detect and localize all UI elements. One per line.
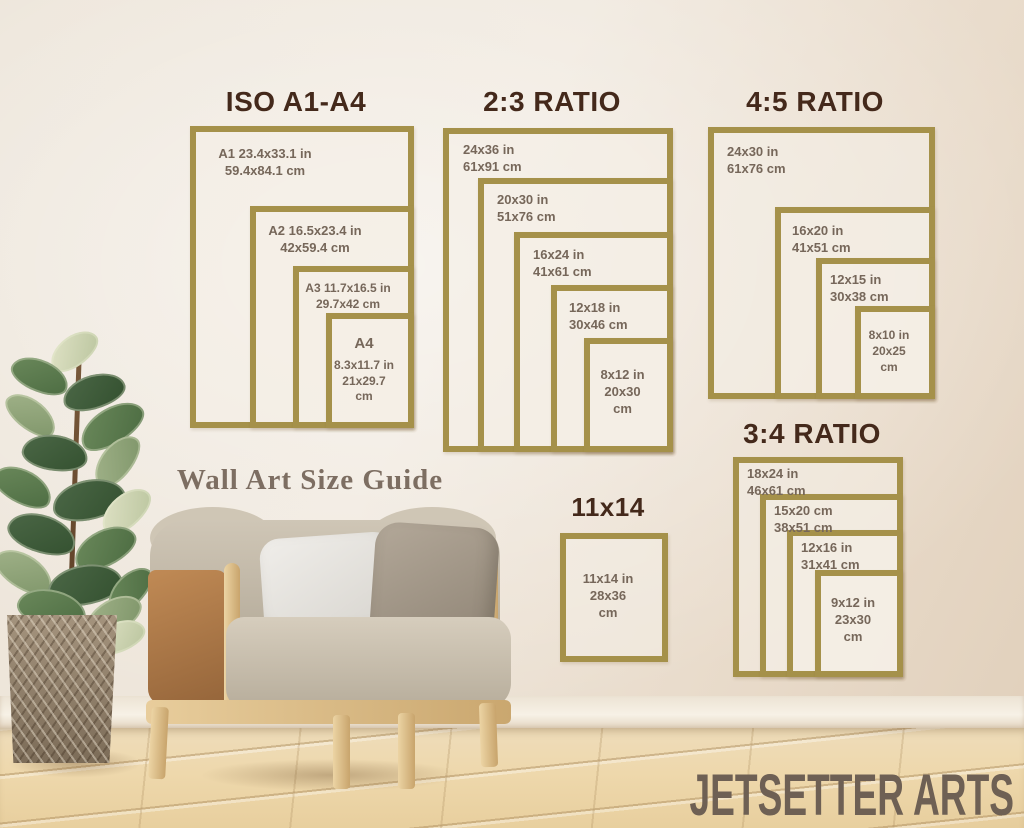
size-label-a2: A2 16.5x23.4 in 42x59.4 cm [252,222,378,256]
size-label-8x12: 8x12 in 20x30 cm [588,366,657,417]
size-label-12x15: 12x15 in 30x38 cm [830,271,889,305]
group-title-2-3: 2:3 RATIO [442,86,662,118]
chair-leg [398,713,415,789]
size-label-8x10: 8x10 in 20x25 cm [858,328,920,375]
plant-leaf [19,430,90,477]
size-label-9x12: 9x12 in 23x30 cm [818,594,888,645]
size-label-24x36: 24x36 in 61x91 cm [463,141,522,175]
group-title-11x14: 11x14 [498,492,718,523]
chair-frame-rail [146,700,511,724]
size-label-11x14: 11x14 in 28x36 cm [564,570,652,621]
guide-heading: Wall Art Size Guide [150,464,470,497]
size-label-18x24: 18x24 in 46x61 cm [747,465,806,499]
group-title-3-4: 3:4 RATIO [702,418,922,450]
plant-pot [0,615,126,763]
size-label-a4: A4 8.3x11.7 in 21x29.7 cm [330,334,398,405]
size-label-12x16: 12x16 in 31x41 cm [801,539,860,573]
scene: ISO A1-A4 A1 23.4x33.1 in 59.4x84.1 cm A… [0,0,1024,828]
chair-leather-side [148,570,228,705]
size-label-12x18: 12x18 in 30x46 cm [569,299,628,333]
size-label-a3: A3 11.7x16.5 in 29.7x42 cm [298,281,398,313]
size-label-24x30: 24x30 in 61x76 cm [727,143,786,177]
armchair [140,495,516,800]
size-label-16x24: 16x24 in 41x61 cm [533,246,592,280]
size-label-15x20: 15x20 cm 38x51 cm [774,502,833,536]
size-label-a1: A1 23.4x33.1 in 59.4x84.1 cm [200,145,330,179]
group-title-iso: ISO A1-A4 [186,86,406,118]
chair-leg [333,715,350,789]
chair-leg [479,703,498,768]
size-label-16x20: 16x20 in 41x51 cm [792,222,851,256]
brand-logo-text: JETSETTER ARTS [690,762,1015,828]
size-label-20x30: 20x30 in 51x76 cm [497,191,556,225]
chair-seat-cushion [226,617,511,709]
group-title-4-5: 4:5 RATIO [705,86,925,118]
chair-leg [148,707,169,780]
